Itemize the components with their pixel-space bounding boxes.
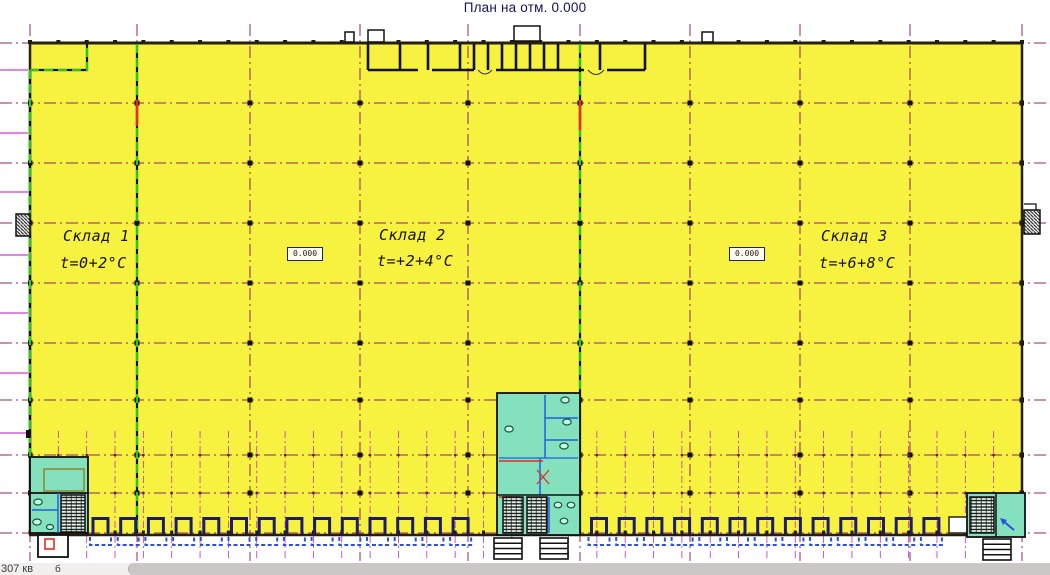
warehouse-3-temp: t=+6+8°C (819, 254, 895, 272)
office-block-left (30, 457, 88, 557)
amenity-block-center (494, 393, 580, 559)
warehouse-1-temp: t=0+2°C (60, 254, 127, 272)
warehouse-3-label: Склад 3 (821, 227, 888, 245)
status-text: 307 кв (1, 563, 33, 575)
page-title: План на отм. 0.000 (0, 0, 1050, 17)
status-glyph: б (55, 563, 61, 575)
horizontal-scrollbar-track[interactable]: 307 кв б (0, 563, 1050, 575)
stair-block-right (967, 493, 1025, 560)
horizontal-scrollbar-thumb[interactable] (128, 563, 1050, 575)
elevation-mark-2: 0.000 (729, 247, 765, 261)
warehouse-1-label: Склад 1 (63, 227, 130, 245)
elevation-mark-1: 0.000 (287, 247, 323, 261)
warehouse-2-label: Склад 2 (379, 226, 446, 244)
cad-viewport: План на отм. 0.000 Склад 1 t=0+2°C Склад… (0, 0, 1050, 575)
warehouse-2-temp: t=+2+4°C (377, 252, 453, 270)
floor-plan-drawing (0, 0, 1050, 575)
